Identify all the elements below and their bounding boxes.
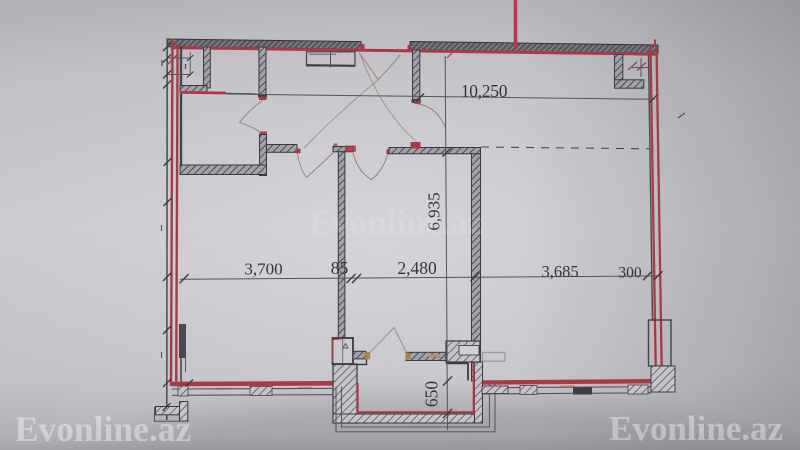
svg-text:Evonline.az: Evonline.az	[609, 409, 783, 448]
svg-text:650: 650	[422, 381, 442, 408]
svg-text:3,700: 3,700	[244, 260, 282, 279]
svg-text:10,250: 10,250	[461, 81, 508, 101]
svg-text:85: 85	[331, 258, 349, 278]
svg-text:Evonline.az: Evonline.az	[309, 203, 483, 242]
svg-text:Evonline.az: Evonline.az	[15, 409, 192, 449]
svg-text:3,685: 3,685	[541, 262, 578, 281]
svg-text:2,480: 2,480	[397, 258, 437, 278]
svg-text:300: 300	[618, 265, 642, 282]
